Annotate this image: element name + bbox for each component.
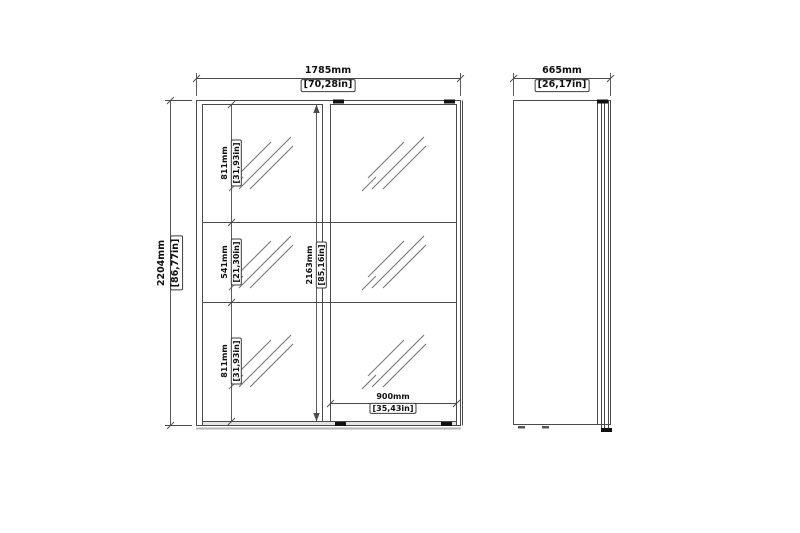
roller-mark-top-left — [333, 100, 344, 104]
side-view-outline — [514, 101, 611, 431]
side-foot-mark-left — [518, 426, 525, 429]
mirror-hatch-marks — [229, 137, 426, 389]
side-roller-mark-bottom — [601, 428, 612, 432]
wardrobe-dimension-drawing: 1785mm [70,28in] 665mm [26,17in] 2204mm … — [0, 0, 800, 533]
side-cabinet-body — [514, 101, 611, 425]
roller-mark-top-right — [444, 100, 455, 104]
front-door-roller-marks — [333, 100, 455, 427]
front-dimension-lines — [165, 73, 464, 429]
side-roller-mark-top — [597, 100, 608, 104]
front-bottom-rail — [203, 422, 457, 426]
side-foot-mark-right — [542, 426, 549, 429]
roller-mark-bottom-left — [335, 422, 346, 426]
roller-mark-bottom-right — [441, 422, 452, 426]
drawing-geometry — [0, 0, 800, 533]
front-cabinet-body — [197, 101, 461, 426]
side-dimension-lines — [510, 73, 614, 96]
